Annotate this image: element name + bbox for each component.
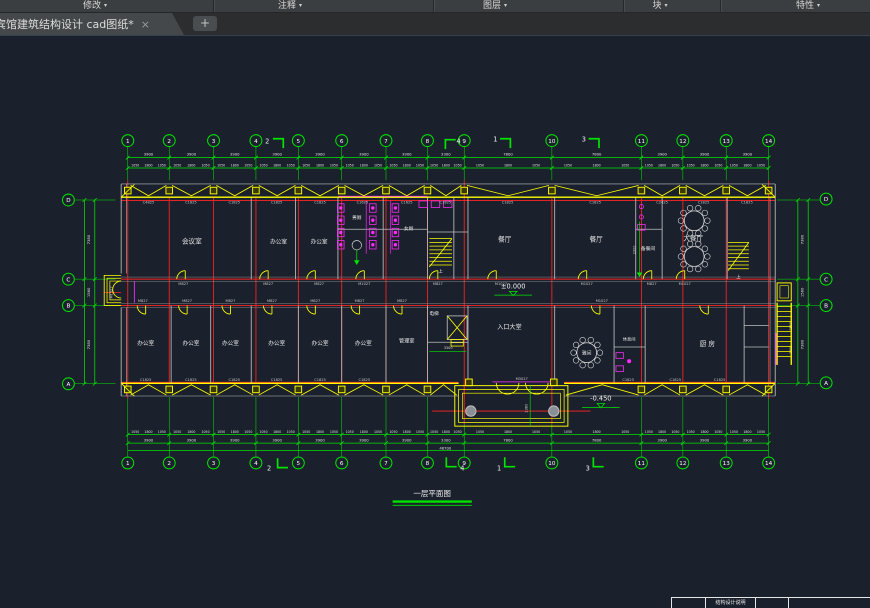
svg-text:±0.000: ±0.000	[501, 283, 525, 291]
svg-text:M1027: M1027	[596, 299, 608, 303]
svg-text:C1825: C1825	[714, 378, 726, 382]
svg-text:3900: 3900	[700, 439, 710, 443]
svg-text:1560: 1560	[87, 287, 91, 297]
svg-text:9: 9	[462, 139, 466, 145]
svg-text:1050: 1050	[260, 163, 268, 167]
svg-text:M1027: M1027	[679, 282, 691, 286]
svg-text:1050: 1050	[430, 430, 438, 434]
svg-text:1050: 1050	[476, 430, 484, 434]
annotation-codes[interactable]: C4825C1825C1825C1825C1825C1625C1625C1825…	[110, 201, 753, 413]
svg-text:3300: 3300	[441, 439, 451, 443]
svg-text:办公室: 办公室	[355, 339, 372, 347]
svg-text:1050: 1050	[217, 430, 225, 434]
svg-text:1: 1	[497, 464, 501, 472]
svg-text:餐厅: 餐厅	[590, 234, 604, 243]
tab-close-icon[interactable]: ×	[141, 18, 150, 31]
svg-text:2: 2	[267, 464, 271, 472]
svg-text:M827: M827	[314, 282, 324, 286]
svg-text:备餐间: 备餐间	[641, 245, 655, 252]
svg-text:M827: M827	[178, 282, 188, 286]
svg-text:3: 3	[212, 139, 216, 145]
svg-text:C1625: C1625	[401, 201, 413, 205]
svg-text:1050: 1050	[621, 163, 629, 167]
svg-text:6: 6	[340, 461, 344, 467]
svg-text:D: D	[66, 198, 71, 204]
section-marks[interactable]: 24132413	[265, 136, 604, 473]
floor-plan-drawing[interactable]: 3900390010501050180018001050105039003900…	[0, 36, 870, 608]
svg-text:7380: 7380	[800, 234, 804, 244]
svg-text:3900: 3900	[315, 439, 325, 443]
file-tab-active[interactable]: 宾馆建筑结构设计 cad图纸* ×	[0, 13, 184, 35]
svg-text:M827: M827	[310, 299, 320, 303]
app-window: 修改▾ 注释▾ 图层▾ 块▾ 特性▾ 宾馆建筑结构设计 cad图纸* × + 3…	[0, 0, 870, 608]
svg-text:A: A	[824, 381, 828, 387]
svg-text:1800: 1800	[593, 430, 601, 434]
svg-text:1800: 1800	[144, 163, 152, 167]
svg-text:3900: 3900	[359, 153, 369, 157]
svg-text:3900: 3900	[187, 153, 197, 157]
svg-text:A: A	[66, 382, 70, 388]
svg-text:1050: 1050	[532, 430, 540, 434]
svg-text:1800: 1800	[743, 163, 751, 167]
svg-text:14: 14	[765, 139, 773, 145]
svg-text:1800: 1800	[360, 430, 368, 434]
svg-text:1050: 1050	[330, 430, 338, 434]
svg-text:1050: 1050	[260, 430, 268, 434]
svg-text:1050: 1050	[564, 430, 572, 434]
svg-text:C1825: C1825	[698, 201, 710, 205]
svg-text:1800: 1800	[658, 163, 666, 167]
svg-text:D: D	[824, 197, 829, 203]
svg-text:M827: M827	[397, 299, 407, 303]
svg-text:1050: 1050	[287, 163, 295, 167]
svg-text:-0.450: -0.450	[590, 395, 611, 403]
svg-text:M827: M827	[433, 282, 443, 286]
svg-text:3900: 3900	[315, 153, 325, 157]
svg-text:13: 13	[723, 461, 731, 467]
svg-text:1050: 1050	[621, 430, 629, 434]
svg-text:C1825: C1825	[670, 378, 682, 382]
svg-text:3900: 3900	[272, 439, 282, 443]
svg-text:C1825: C1825	[502, 201, 514, 205]
svg-text:7800: 7800	[592, 153, 602, 157]
svg-text:14: 14	[765, 461, 773, 467]
svg-text:1050: 1050	[430, 163, 438, 167]
svg-text:12: 12	[679, 461, 687, 467]
svg-text:1800: 1800	[442, 163, 450, 167]
svg-text:7800: 7800	[503, 153, 513, 157]
svg-text:6: 6	[340, 139, 344, 145]
svg-text:1800: 1800	[231, 163, 239, 167]
svg-text:7380: 7380	[87, 234, 91, 244]
svg-text:1050: 1050	[532, 163, 540, 167]
svg-text:办公室: 办公室	[311, 237, 328, 245]
svg-text:2380: 2380	[524, 404, 528, 413]
svg-text:1050: 1050	[730, 430, 738, 434]
svg-text:3900: 3900	[187, 439, 197, 443]
svg-text:1050: 1050	[330, 163, 338, 167]
svg-text:3900: 3900	[359, 439, 369, 443]
svg-text:2300: 2300	[633, 246, 637, 255]
svg-text:1050: 1050	[389, 430, 397, 434]
svg-text:48700: 48700	[439, 446, 452, 450]
svg-text:女厕: 女厕	[404, 225, 414, 232]
svg-text:10: 10	[548, 461, 556, 467]
svg-text:1050: 1050	[645, 163, 653, 167]
svg-text:休息间: 休息间	[623, 335, 636, 342]
title-block-table: 结构设计说明	[671, 597, 870, 608]
svg-text:C1825: C1825	[741, 201, 753, 205]
svg-text:1050: 1050	[173, 430, 181, 434]
svg-text:1050: 1050	[346, 430, 354, 434]
svg-text:1050: 1050	[389, 163, 397, 167]
svg-text:2: 2	[265, 137, 269, 145]
svg-text:12: 12	[679, 139, 687, 145]
svg-text:M827: M827	[355, 299, 365, 303]
svg-text:1800: 1800	[316, 163, 324, 167]
svg-text:1050: 1050	[416, 430, 424, 434]
svg-text:上: 上	[439, 268, 444, 274]
svg-text:1800: 1800	[273, 163, 281, 167]
ribbon-panel-properties[interactable]: 特性▾	[753, 0, 863, 12]
svg-text:1800: 1800	[316, 430, 324, 434]
svg-text:会议室: 会议室	[182, 236, 202, 245]
svg-text:7: 7	[384, 139, 388, 145]
svg-text:M827: M827	[647, 282, 657, 286]
svg-text:1800: 1800	[360, 163, 368, 167]
svg-text:M827: M827	[182, 299, 192, 303]
svg-text:1050: 1050	[645, 430, 653, 434]
svg-text:C1825: C1825	[228, 201, 240, 205]
svg-text:3300: 3300	[441, 153, 451, 157]
svg-text:1050: 1050	[302, 430, 310, 434]
svg-text:一层平面图: 一层平面图	[413, 489, 451, 498]
svg-text:C1825: C1825	[185, 201, 197, 205]
svg-text:管理室: 管理室	[399, 336, 415, 344]
svg-text:1050: 1050	[201, 163, 209, 167]
svg-text:1050: 1050	[158, 430, 166, 434]
svg-text:B: B	[66, 304, 70, 310]
svg-text:1800: 1800	[187, 430, 195, 434]
svg-text:4: 4	[460, 464, 464, 472]
svg-text:1800: 1800	[231, 430, 239, 434]
svg-text:1: 1	[126, 139, 130, 145]
file-tab-bar: 宾馆建筑结构设计 cad图纸* × +	[0, 13, 870, 35]
svg-text:3900: 3900	[230, 153, 240, 157]
svg-text:M1027: M1027	[581, 282, 593, 286]
svg-text:1050: 1050	[730, 163, 738, 167]
svg-text:M827: M827	[138, 299, 148, 303]
svg-text:1050: 1050	[374, 430, 382, 434]
svg-text:11: 11	[638, 461, 646, 467]
svg-text:大餐厅: 大餐厅	[683, 234, 703, 243]
svg-text:13: 13	[723, 139, 731, 145]
svg-text:3900: 3900	[743, 439, 753, 443]
svg-text:M827: M827	[263, 282, 273, 286]
svg-text:7: 7	[384, 461, 388, 467]
svg-text:5: 5	[297, 139, 301, 145]
svg-text:10: 10	[548, 139, 556, 145]
svg-text:C1625: C1625	[357, 201, 369, 205]
svg-text:8: 8	[426, 461, 430, 467]
svg-text:M1027: M1027	[358, 282, 370, 286]
svg-text:1050: 1050	[687, 163, 695, 167]
svg-text:男厕: 男厕	[352, 215, 362, 221]
svg-text:办公室: 办公室	[222, 339, 239, 347]
svg-text:C1825: C1825	[228, 378, 240, 382]
svg-text:3900: 3900	[272, 153, 282, 157]
svg-text:M827: M827	[226, 299, 236, 303]
svg-text:2: 2	[167, 461, 171, 467]
ribbon-panel-modify[interactable]: 修改▾	[40, 0, 150, 12]
svg-text:C1825: C1825	[271, 201, 283, 205]
svg-text:1050: 1050	[714, 163, 722, 167]
chevron-down-icon: ▾	[504, 2, 507, 9]
svg-text:C1825: C1825	[185, 378, 197, 382]
svg-text:7800: 7800	[503, 439, 513, 443]
svg-text:餐厅: 餐厅	[498, 234, 512, 243]
svg-text:4: 4	[254, 461, 258, 467]
svg-text:C: C	[66, 277, 70, 283]
svg-text:2: 2	[167, 139, 171, 145]
plan-title[interactable]: 一层平面图	[393, 489, 472, 505]
svg-text:1800: 1800	[593, 163, 601, 167]
svg-text:1800: 1800	[504, 430, 512, 434]
svg-text:1050: 1050	[687, 430, 695, 434]
svg-text:上: 上	[736, 273, 741, 279]
svg-text:1800: 1800	[658, 430, 666, 434]
svg-text:3: 3	[586, 464, 590, 472]
svg-text:1800: 1800	[700, 430, 708, 434]
svg-text:办公室: 办公室	[312, 339, 329, 347]
svg-text:C1825: C1825	[440, 201, 452, 205]
svg-text:1800: 1800	[144, 430, 152, 434]
drawing-canvas[interactable]: 3900390010501050180018001050105039003900…	[0, 35, 870, 608]
svg-text:C1825: C1825	[314, 201, 326, 205]
grid-bubbles[interactable]: 12345678910111213141234567891011121314DC…	[62, 135, 832, 469]
svg-text:电梯: 电梯	[429, 310, 439, 317]
svg-text:1800: 1800	[442, 430, 450, 434]
svg-text:3: 3	[582, 136, 586, 144]
svg-text:3900: 3900	[144, 439, 154, 443]
svg-text:7380: 7380	[87, 339, 91, 349]
svg-text:厨 房: 厨 房	[700, 339, 716, 348]
svg-text:C1825: C1825	[589, 201, 601, 205]
svg-text:1050: 1050	[671, 430, 679, 434]
svg-text:7380: 7380	[800, 339, 804, 349]
svg-text:1050: 1050	[757, 430, 765, 434]
svg-text:1050: 1050	[173, 163, 181, 167]
svg-text:1050: 1050	[476, 163, 484, 167]
svg-text:1: 1	[126, 461, 130, 467]
svg-text:1: 1	[493, 136, 497, 144]
svg-text:C4825: C4825	[143, 201, 155, 205]
chevron-down-icon: ▾	[817, 2, 820, 9]
svg-text:M1527: M1527	[110, 286, 114, 298]
svg-text:办公室: 办公室	[270, 237, 287, 245]
new-tab-button[interactable]: +	[193, 16, 217, 31]
svg-text:1050: 1050	[158, 163, 166, 167]
ribbon-panel-annotate[interactable]: 注释▾	[235, 0, 345, 12]
svg-text:1050: 1050	[454, 163, 462, 167]
svg-text:1800: 1800	[273, 430, 281, 434]
svg-text:1050: 1050	[374, 163, 382, 167]
svg-text:1050: 1050	[454, 430, 462, 434]
svg-text:1050: 1050	[714, 430, 722, 434]
svg-text:C1825: C1825	[271, 378, 283, 382]
svg-text:1050: 1050	[287, 430, 295, 434]
svg-text:1800: 1800	[187, 163, 195, 167]
svg-text:3900: 3900	[657, 153, 667, 157]
svg-text:3300: 3300	[444, 346, 453, 350]
svg-text:M827: M827	[267, 299, 277, 303]
svg-text:3900: 3900	[144, 153, 154, 157]
svg-text:办公室: 办公室	[137, 339, 154, 347]
ribbon-panel-strip: 修改▾ 注释▾ 图层▾ 块▾ 特性▾	[0, 0, 870, 13]
fixtures[interactable]	[337, 196, 645, 371]
file-tab-title: 宾馆建筑结构设计 cad图纸*	[0, 16, 134, 32]
chevron-down-icon: ▾	[665, 2, 668, 9]
svg-text:C1825: C1825	[314, 378, 326, 382]
svg-text:1050: 1050	[302, 163, 310, 167]
svg-text:1050: 1050	[244, 430, 252, 434]
svg-text:1050: 1050	[671, 163, 679, 167]
svg-text:4: 4	[254, 139, 258, 145]
svg-text:办公室: 办公室	[268, 339, 285, 347]
svg-text:1800: 1800	[403, 163, 411, 167]
svg-text:3900: 3900	[402, 439, 412, 443]
svg-text:C1825: C1825	[359, 378, 371, 382]
svg-text:3900: 3900	[230, 439, 240, 443]
svg-text:11: 11	[638, 139, 646, 145]
svg-text:1800: 1800	[504, 163, 512, 167]
svg-text:4: 4	[456, 137, 460, 145]
svg-text:5: 5	[297, 461, 301, 467]
svg-text:7800: 7800	[592, 439, 602, 443]
svg-text:1050: 1050	[564, 163, 572, 167]
furniture[interactable]	[571, 205, 710, 368]
title-block-label: 结构设计说明	[706, 598, 756, 608]
svg-text:入口大堂: 入口大堂	[497, 323, 521, 331]
svg-text:1050: 1050	[217, 163, 225, 167]
svg-text:3: 3	[212, 461, 216, 467]
svg-text:雅间: 雅间	[582, 350, 592, 357]
svg-text:C1825: C1825	[140, 378, 152, 382]
svg-text:C: C	[824, 277, 828, 283]
svg-text:8: 8	[426, 139, 430, 145]
svg-text:1050: 1050	[131, 430, 139, 434]
ribbon-panel-block[interactable]: 块▾	[605, 0, 715, 12]
svg-text:1050: 1050	[346, 163, 354, 167]
svg-text:1800: 1800	[743, 430, 751, 434]
svg-text:M3027: M3027	[516, 377, 528, 381]
svg-text:办公室: 办公室	[182, 339, 199, 347]
svg-text:C2425: C2425	[656, 201, 668, 205]
svg-text:3900: 3900	[700, 153, 710, 157]
svg-text:1800: 1800	[403, 430, 411, 434]
svg-text:1560: 1560	[800, 287, 804, 297]
svg-text:1050: 1050	[201, 430, 209, 434]
svg-text:3900: 3900	[402, 153, 412, 157]
walls[interactable]	[121, 184, 775, 396]
svg-text:1050: 1050	[757, 163, 765, 167]
svg-text:1800: 1800	[700, 163, 708, 167]
svg-text:3900: 3900	[657, 439, 667, 443]
svg-text:C1825: C1825	[622, 378, 634, 382]
chevron-down-icon: ▾	[299, 2, 302, 9]
chevron-down-icon: ▾	[104, 2, 107, 9]
ribbon-panel-layers[interactable]: 图层▾	[440, 0, 550, 12]
svg-text:B: B	[824, 304, 828, 310]
svg-text:1050: 1050	[416, 163, 424, 167]
svg-text:1050: 1050	[131, 163, 139, 167]
svg-text:3900: 3900	[743, 153, 753, 157]
svg-text:1050: 1050	[244, 163, 252, 167]
